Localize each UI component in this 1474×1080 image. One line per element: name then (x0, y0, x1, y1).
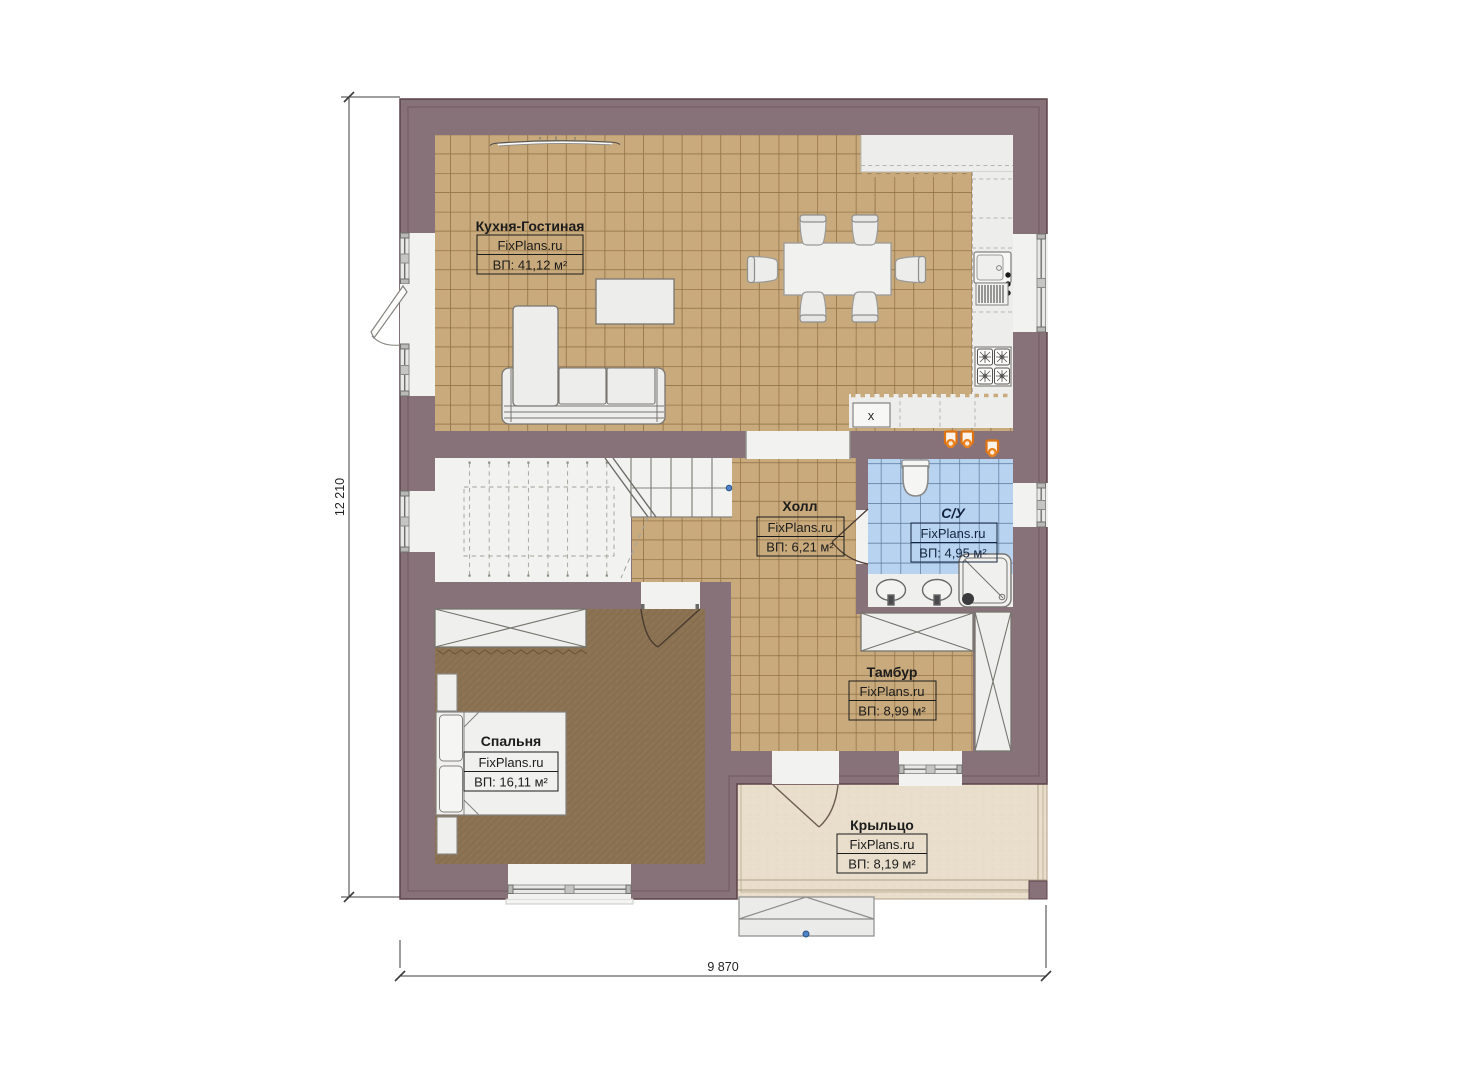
svg-text:9 870: 9 870 (707, 960, 738, 974)
svg-text:С/У: С/У (941, 505, 966, 521)
svg-text:ВП: 41,12 м²: ВП: 41,12 м² (493, 258, 568, 273)
svg-text:Тамбур: Тамбур (867, 664, 918, 680)
svg-text:FixPlans.ru: FixPlans.ru (920, 526, 985, 541)
svg-text:ВП: 4,95 м²: ВП: 4,95 м² (919, 546, 987, 561)
svg-text:Спальня: Спальня (481, 733, 541, 749)
svg-text:ВП: 8,99 м²: ВП: 8,99 м² (858, 704, 926, 719)
svg-text:FixPlans.ru: FixPlans.ru (859, 684, 924, 699)
svg-text:x: x (868, 408, 875, 423)
svg-text:Кухня-Гостиная: Кухня-Гостиная (476, 218, 585, 234)
svg-text:12 210: 12 210 (333, 478, 347, 516)
svg-text:ВП: 8,19 м²: ВП: 8,19 м² (848, 857, 916, 872)
svg-text:FixPlans.ru: FixPlans.ru (849, 837, 914, 852)
svg-text:ВП: 16,11 м²: ВП: 16,11 м² (474, 775, 548, 790)
svg-text:FixPlans.ru: FixPlans.ru (497, 238, 562, 253)
svg-text:ВП: 6,21 м²: ВП: 6,21 м² (766, 540, 834, 555)
svg-text:FixPlans.ru: FixPlans.ru (478, 755, 543, 770)
svg-text:FixPlans.ru: FixPlans.ru (767, 520, 832, 535)
svg-text:Холл: Холл (782, 498, 817, 514)
svg-text:Крыльцо: Крыльцо (850, 817, 914, 833)
